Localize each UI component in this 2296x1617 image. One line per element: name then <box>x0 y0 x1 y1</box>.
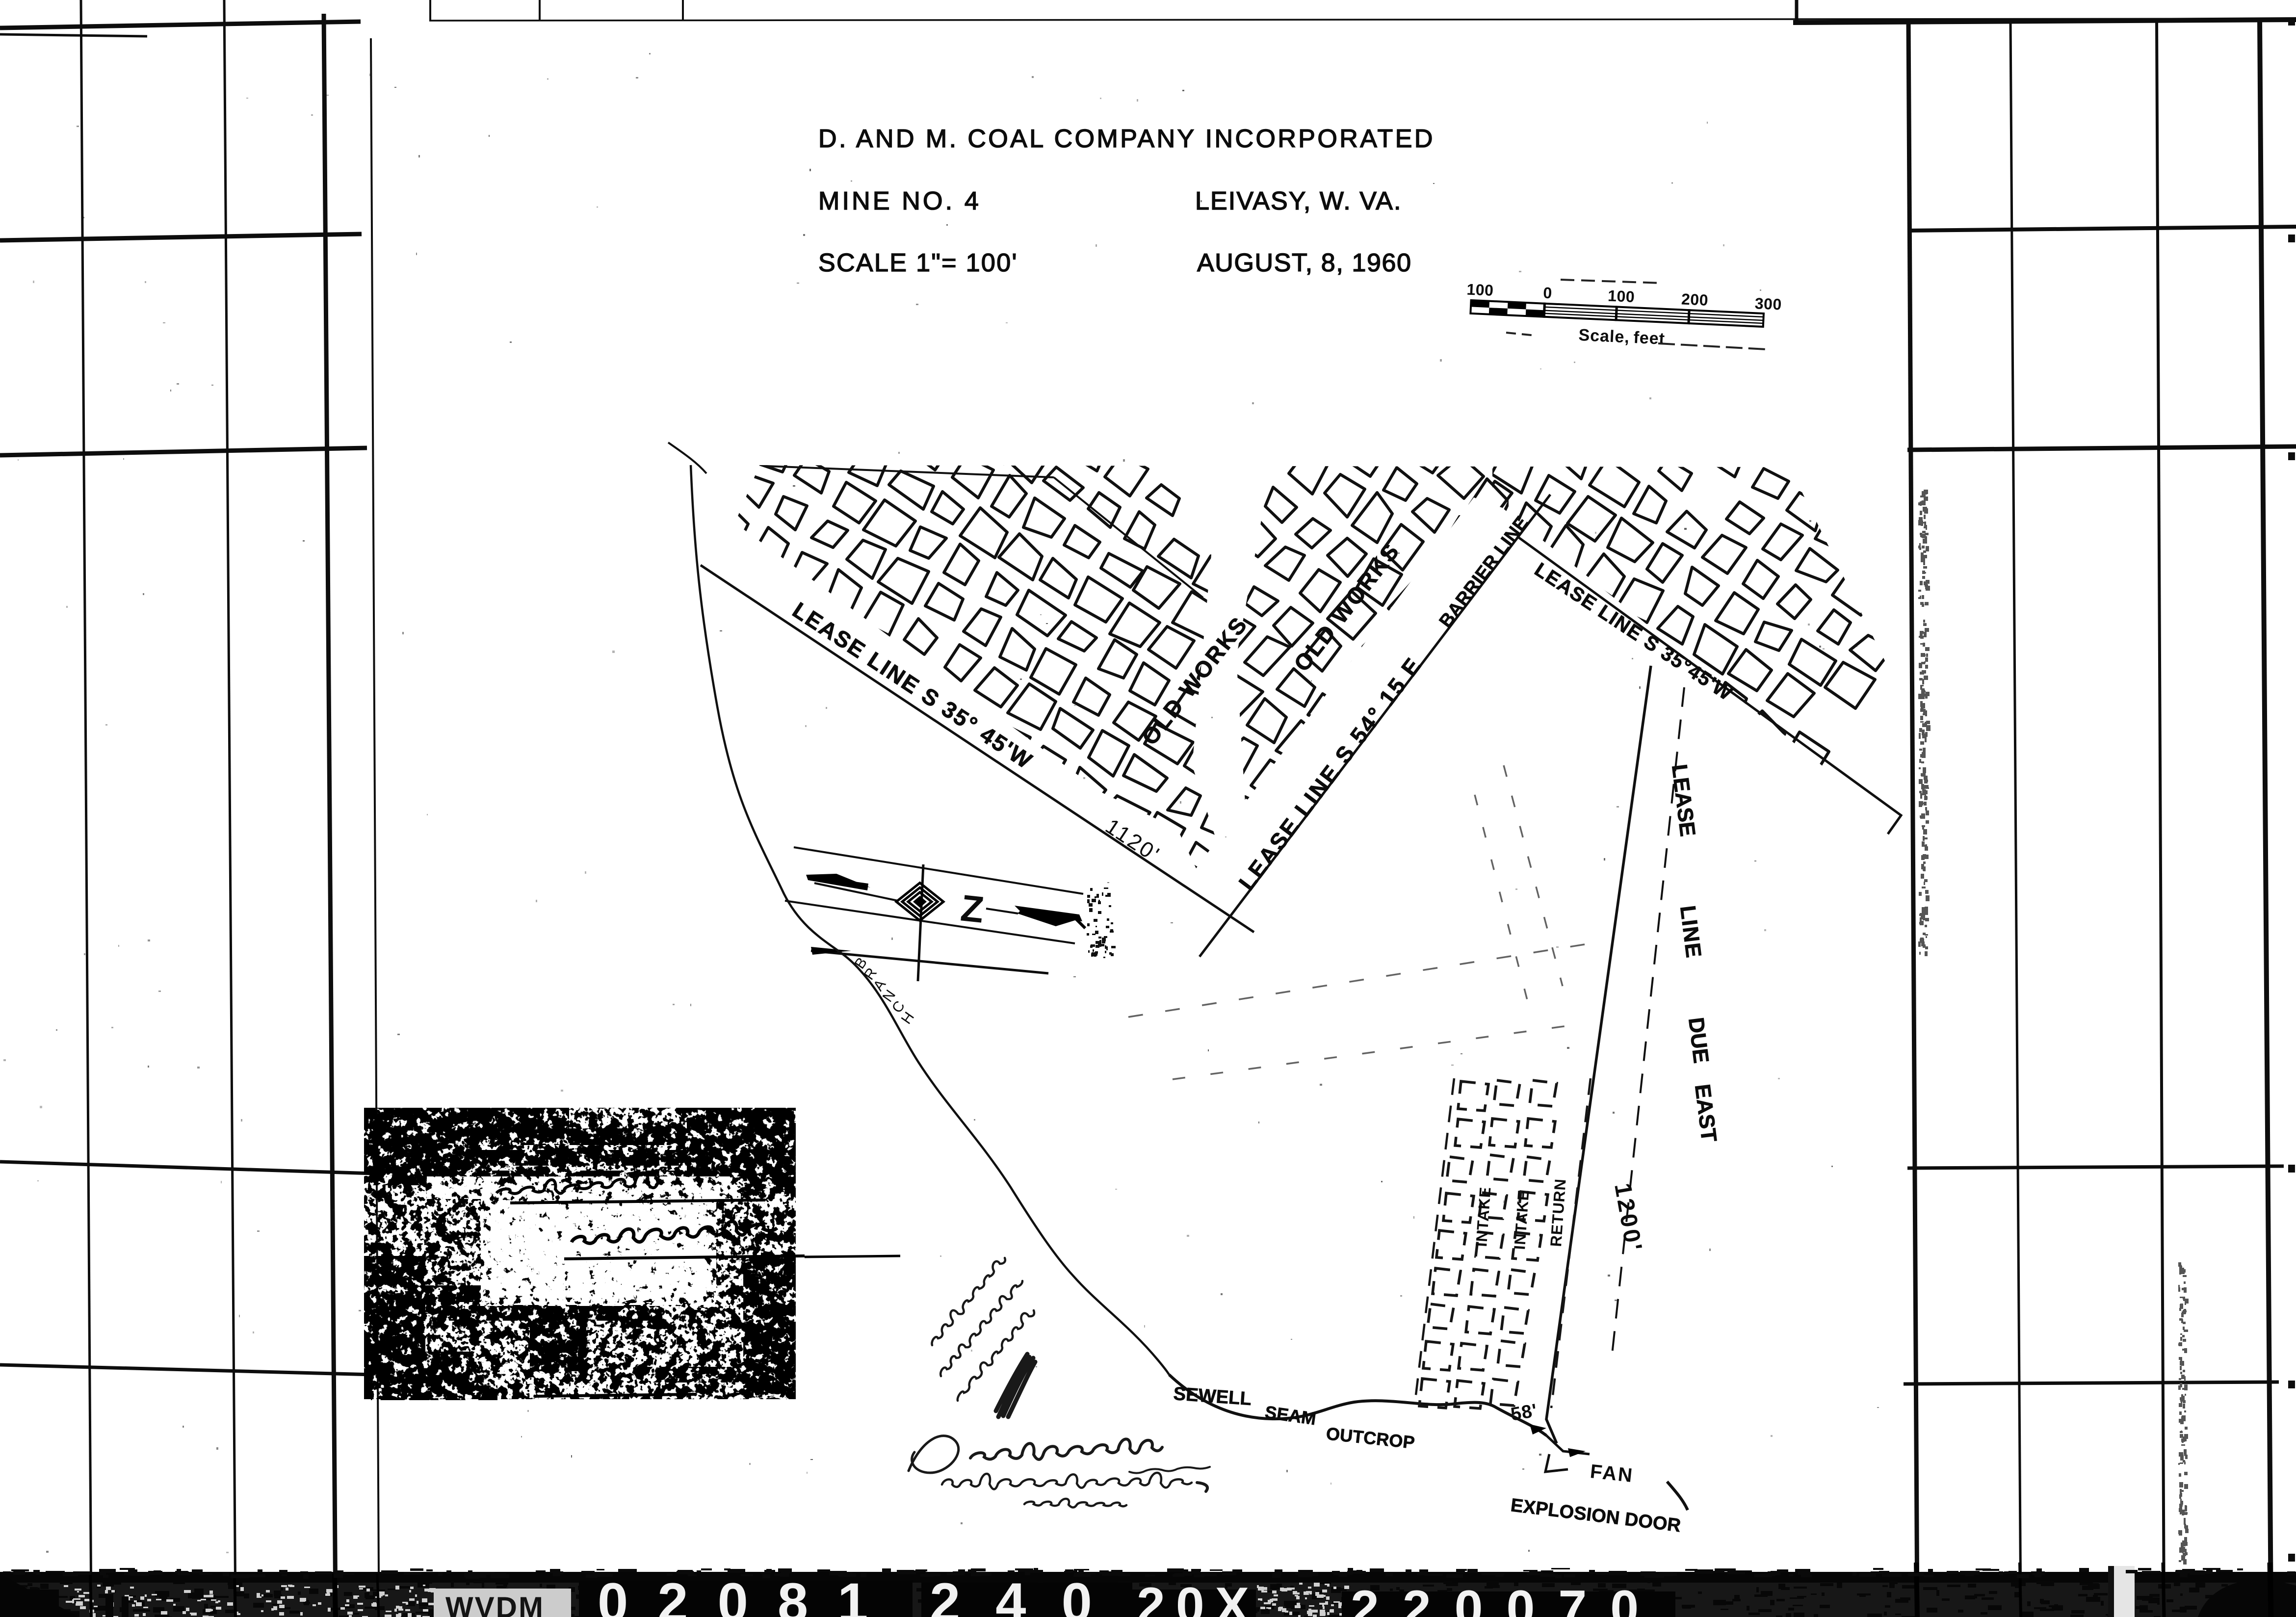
svg-text:SCALE 1"= 100': SCALE 1"= 100' <box>818 249 1018 277</box>
svg-text:220070: 220070 <box>1351 1580 1662 1617</box>
svg-text:AUGUST, 8, 1960: AUGUST, 8, 1960 <box>1197 249 1412 277</box>
svg-text:Z: Z <box>959 887 986 931</box>
svg-text:FAN: FAN <box>1589 1461 1635 1487</box>
svg-text:100: 100 <box>1466 281 1494 299</box>
svg-text:200: 200 <box>1681 290 1708 309</box>
svg-text:02081: 02081 <box>598 1572 897 1617</box>
svg-text:240: 240 <box>930 1572 1127 1617</box>
svg-text:Scale, feet: Scale, feet <box>1578 326 1666 348</box>
svg-text:0: 0 <box>1543 284 1552 302</box>
svg-text:20X: 20X <box>1137 1577 1260 1617</box>
svg-text:D. AND M. COAL COMPANY INCORPO: D. AND M. COAL COMPANY INCORPORATED <box>818 125 1435 153</box>
svg-text:LEIVASY, W. VA.: LEIVASY, W. VA. <box>1195 187 1402 215</box>
svg-text:WVDM: WVDM <box>445 1591 545 1617</box>
svg-text:100: 100 <box>1607 287 1635 306</box>
svg-text:MINE NO. 4: MINE NO. 4 <box>818 187 981 215</box>
svg-text:300: 300 <box>1754 294 1782 313</box>
